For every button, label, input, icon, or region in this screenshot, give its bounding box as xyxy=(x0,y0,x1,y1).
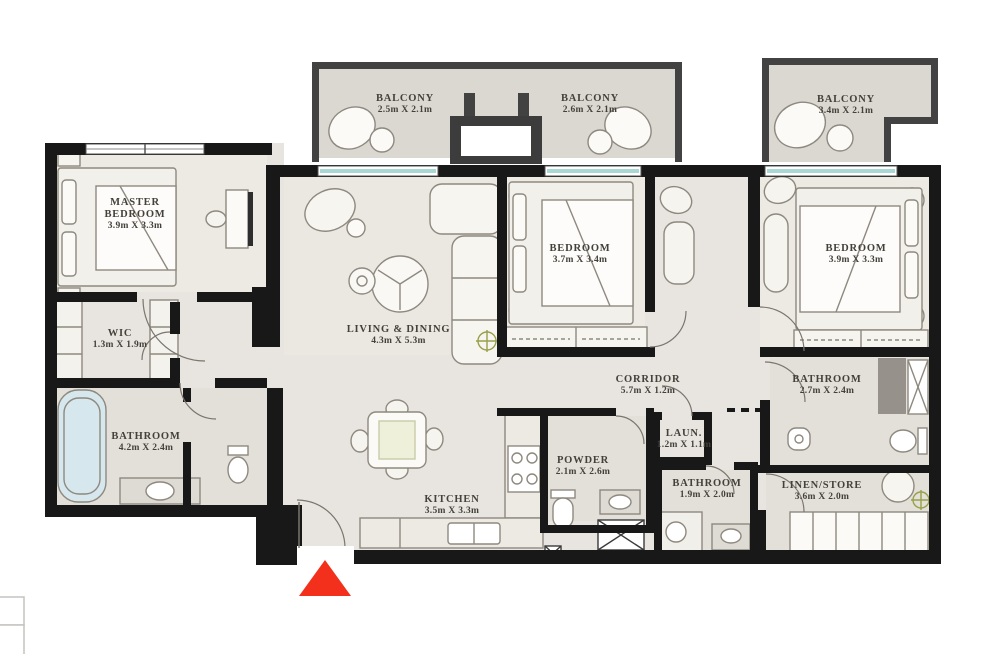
bathtub xyxy=(58,390,106,502)
floor-plan-canvas: MASTER BEDROOM 3.9m X 3.3m BALCONY 2.5m … xyxy=(0,0,984,654)
floor-plan-drawing xyxy=(0,0,984,654)
master-bed xyxy=(58,152,176,302)
master-wc-toilet xyxy=(228,446,248,483)
adjacent-unit-outline xyxy=(0,597,24,654)
